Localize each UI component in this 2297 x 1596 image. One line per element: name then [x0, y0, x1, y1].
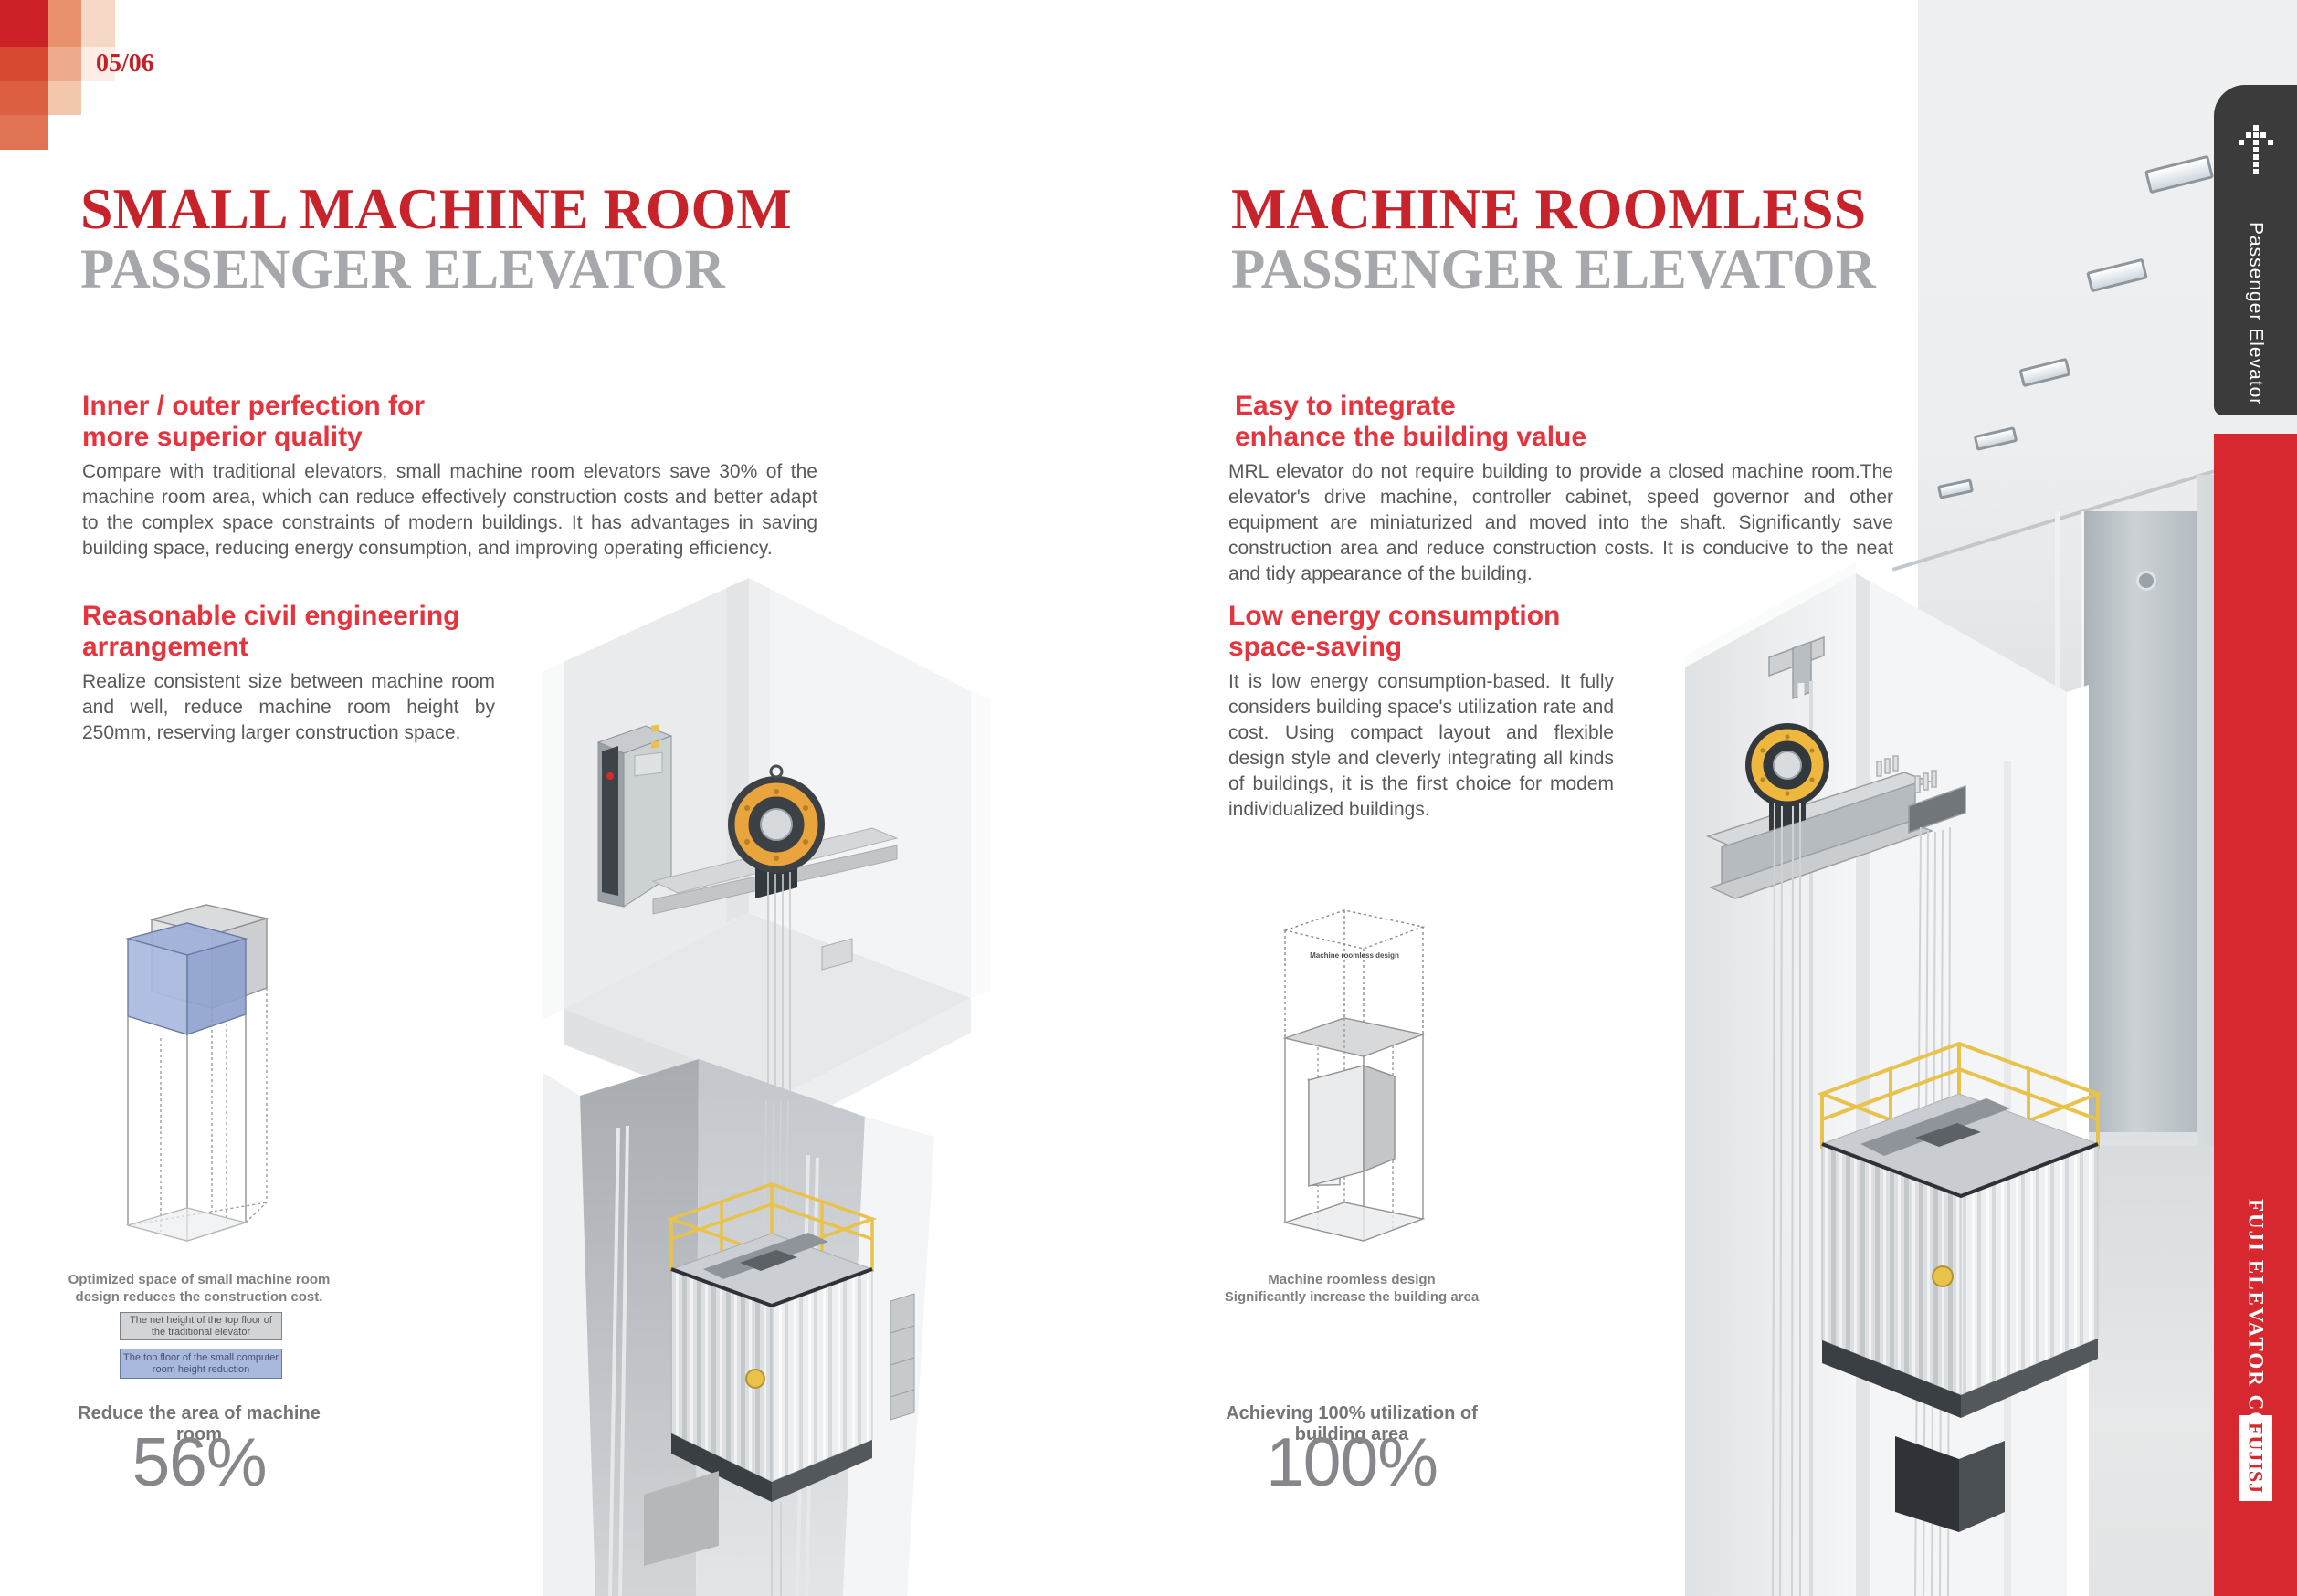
small-machine-room-wireframe-diagram	[117, 899, 281, 1255]
brand-logo: FUJISJ	[2239, 1415, 2272, 1501]
right-diagram-caption: Machine roomless design Significantly in…	[1217, 1271, 1487, 1306]
right-title-line2: PASSENGER ELEVATOR	[1231, 239, 1876, 300]
brochure-page: 05/06 SMALL MACHINE ROOM PASSENGER ELEVA…	[0, 0, 2297, 1596]
passenger-elevator-tab: Passenger Elevator	[2214, 85, 2297, 415]
heading-line: more superior quality	[82, 422, 425, 453]
heading-line: arrangement	[82, 632, 459, 663]
wireframe-inner-label: Machine roomless design	[1310, 951, 1399, 960]
brand-logo-text: FUJISJ	[2244, 1423, 2268, 1494]
legend-small-machine-room: The top floor of the small computer room…	[120, 1349, 282, 1379]
left-feature1-heading: Inner / outer perfection for more superi…	[82, 391, 425, 453]
heading-line: enhance the building value	[1235, 422, 1586, 453]
left-title-line1: SMALL MACHINE ROOM	[80, 178, 792, 239]
small-machine-room-render	[507, 498, 1078, 1596]
mosaic-square	[48, 47, 81, 81]
heading-line: Reasonable civil engineering	[82, 601, 459, 632]
caption-line: Machine roomless design	[1217, 1271, 1487, 1288]
mosaic-square	[48, 81, 81, 115]
ceiling-light	[2144, 155, 2214, 194]
left-section-title: SMALL MACHINE ROOM PASSENGER ELEVATOR	[80, 178, 792, 300]
ceiling-light	[1974, 426, 2018, 451]
legend-traditional-elevator: The net height of the top floor of the t…	[120, 1312, 282, 1340]
right-feature1-heading: Easy to integrate enhance the building v…	[1235, 391, 1586, 453]
ceiling-light	[2018, 358, 2070, 387]
mosaic-square	[0, 115, 48, 150]
caption-line: design reduces the construction cost.	[64, 1288, 334, 1306]
right-title-line1: MACHINE ROOMLESS	[1231, 178, 1876, 239]
heading-line: space-saving	[1228, 632, 1560, 663]
brand-side-bar: FUJI ELEVATOR CO.,LTD FUJISJ	[2214, 434, 2297, 1596]
mosaic-square	[0, 81, 48, 115]
mosaic-square	[81, 0, 115, 47]
right-feature2-body: It is low energy consumption-based. It f…	[1228, 669, 1614, 823]
counterweight	[890, 1294, 914, 1420]
mosaic-square	[0, 0, 48, 47]
ceiling-light	[2086, 258, 2148, 293]
left-diagram-caption: Optimized space of small machine room de…	[64, 1271, 334, 1306]
pixel-arrow-up-icon	[2236, 125, 2276, 182]
tab-label: Passenger Elevator	[2245, 222, 2267, 405]
right-feature2-heading: Low energy consumption space-saving	[1228, 601, 1560, 663]
ceiling-light	[1937, 478, 1974, 499]
left-title-line2: PASSENGER ELEVATOR	[80, 239, 792, 300]
heading-line: Easy to integrate	[1235, 391, 1586, 422]
heading-line: Low energy consumption	[1228, 601, 1560, 632]
left-stat-value: 56%	[64, 1423, 334, 1501]
caption-line: Significantly increase the building area	[1217, 1288, 1487, 1306]
mosaic-square	[48, 0, 81, 47]
left-feature2-heading: Reasonable civil engineering arrangement	[82, 601, 459, 663]
heading-line: Inner / outer perfection for	[82, 391, 425, 422]
page-number: 05/06	[96, 49, 154, 79]
machine-roomless-render	[1685, 546, 2238, 1596]
right-stat-value: 100%	[1201, 1423, 1502, 1501]
mosaic-square	[0, 47, 48, 81]
machine-roomless-wireframe-diagram: Machine roomless design	[1274, 899, 1438, 1255]
caption-line: Optimized space of small machine room	[64, 1271, 334, 1288]
right-section-title: MACHINE ROOMLESS PASSENGER ELEVATOR	[1231, 178, 1876, 300]
left-feature2-body: Realize consistent size between machine …	[82, 669, 495, 746]
